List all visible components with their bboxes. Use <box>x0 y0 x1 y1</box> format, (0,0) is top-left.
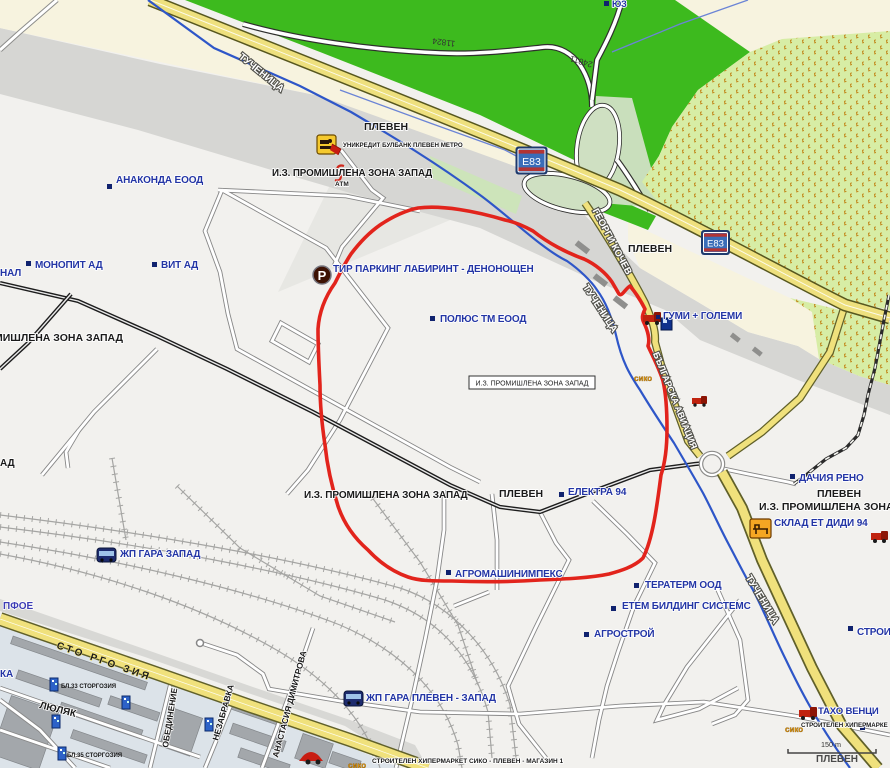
svg-text:И.З. ПРОМИШЛЕНА ЗОНА ЗАПАД: И.З. ПРОМИШЛЕНА ЗОНА ЗАПАД <box>304 490 468 501</box>
svg-text:УНИКРЕДИТ БУЛБАНК ПЛЕВЕН МЕТРО: УНИКРЕДИТ БУЛБАНК ПЛЕВЕН МЕТРО <box>343 142 463 149</box>
svg-text:ЕЛЕКТРА 94: ЕЛЕКТРА 94 <box>568 487 627 498</box>
svg-text:ПЛЕВЕН: ПЛЕВЕН <box>364 121 408 133</box>
svg-text:150 m: 150 m <box>821 740 841 749</box>
svg-text:сико: сико <box>348 761 366 768</box>
svg-text:ЖП ГАРА ПЛЕВЕН - ЗАПАД: ЖП ГАРА ПЛЕВЕН - ЗАПАД <box>365 693 496 704</box>
svg-text:АНАКОНДА ЕООД: АНАКОНДА ЕООД <box>116 175 203 186</box>
svg-text:БЛ.33 СТОРГОЗИЯ: БЛ.33 СТОРГОЗИЯ <box>61 684 116 690</box>
svg-text:сико: сико <box>634 374 652 383</box>
svg-text:ГУМИ + ГОЛЕМИ: ГУМИ + ГОЛЕМИ <box>663 311 742 322</box>
svg-text:АТМ: АТМ <box>335 181 349 188</box>
svg-text:АД: АД <box>0 458 14 469</box>
svg-text:МИШЛЕНА ЗОНА ЗАПАД: МИШЛЕНА ЗОНА ЗАПАД <box>0 332 124 344</box>
svg-text:И.З. ПРОМИШЛЕНА ЗОНА ЗАПАД: И.З. ПРОМИШЛЕНА ЗОНА ЗАПАД <box>475 381 588 388</box>
svg-text:СТРОИТЕЛЕН ХИПЕРМАРКЕ: СТРОИТЕЛЕН ХИПЕРМАРКЕ <box>801 722 888 729</box>
svg-text:ТЕРАТЕРМ ООД: ТЕРАТЕРМ ООД <box>645 580 721 591</box>
svg-text:СТРОИ: СТРОИ <box>857 627 890 638</box>
svg-text:ТИР ПАРКИНГ ЛАБИРИНТ - ДЕНОНОЩ: ТИР ПАРКИНГ ЛАБИРИНТ - ДЕНОНОЩЕН <box>333 264 534 275</box>
svg-text:ПЛЕВЕН: ПЛЕВЕН <box>816 754 858 765</box>
svg-text:МОНОПИТ АД: МОНОПИТ АД <box>35 260 103 271</box>
svg-text:АГРОСТРОЙ: АГРОСТРОЙ <box>594 627 654 640</box>
svg-text:ПЛЕВЕН: ПЛЕВЕН <box>817 488 861 500</box>
svg-text:СТРОИТЕЛЕН ХИПЕРМАРКЕТ СИКО -: СТРОИТЕЛЕН ХИПЕРМАРКЕТ СИКО - ПЛЕВЕН - М… <box>372 758 564 765</box>
svg-text:E83: E83 <box>707 239 724 250</box>
svg-text:E83: E83 <box>522 156 541 168</box>
svg-text:ЮЗ: ЮЗ <box>612 0 627 9</box>
svg-text:СКЛАД ЕТ ДИДИ 94: СКЛАД ЕТ ДИДИ 94 <box>774 518 868 529</box>
svg-text:ТАХО ВЕНЦИ: ТАХО ВЕНЦИ <box>818 706 879 717</box>
svg-text:И.З. ПРОМИШЛЕНА ЗОНА ЗА: И.З. ПРОМИШЛЕНА ЗОНА ЗА <box>759 501 890 513</box>
svg-text:И.З. ПРОМИШЛЕНА ЗОНА ЗАПАД: И.З. ПРОМИШЛЕНА ЗОНА ЗАПАД <box>272 168 432 179</box>
svg-text:НАЛ: НАЛ <box>0 268 21 279</box>
svg-text:сико: сико <box>785 725 803 734</box>
svg-text:ПФОЕ: ПФОЕ <box>3 601 34 612</box>
svg-text:ЕТЕМ БИЛДИНГ СИСТЕМС: ЕТЕМ БИЛДИНГ СИСТЕМС <box>622 601 751 612</box>
svg-text:АГРОМАШИНИМПЕКС: АГРОМАШИНИМПЕКС <box>455 569 563 580</box>
svg-text:ВИТ АД: ВИТ АД <box>161 260 198 271</box>
svg-text:ПОЛЮС ТМ ЕООД: ПОЛЮС ТМ ЕООД <box>440 314 526 325</box>
svg-text:ДАЧИЯ РЕНО: ДАЧИЯ РЕНО <box>799 473 864 484</box>
svg-text:КА: КА <box>0 669 13 680</box>
svg-text:ПЛЕВЕН: ПЛЕВЕН <box>499 488 543 500</box>
svg-text:P: P <box>318 268 327 283</box>
svg-text:ПЛЕВЕН: ПЛЕВЕН <box>628 243 672 255</box>
svg-text:ЖП ГАРА ЗАПАД: ЖП ГАРА ЗАПАД <box>119 549 200 560</box>
svg-text:БЛ.35 СТОРГОЗИЯ: БЛ.35 СТОРГОЗИЯ <box>67 753 122 759</box>
